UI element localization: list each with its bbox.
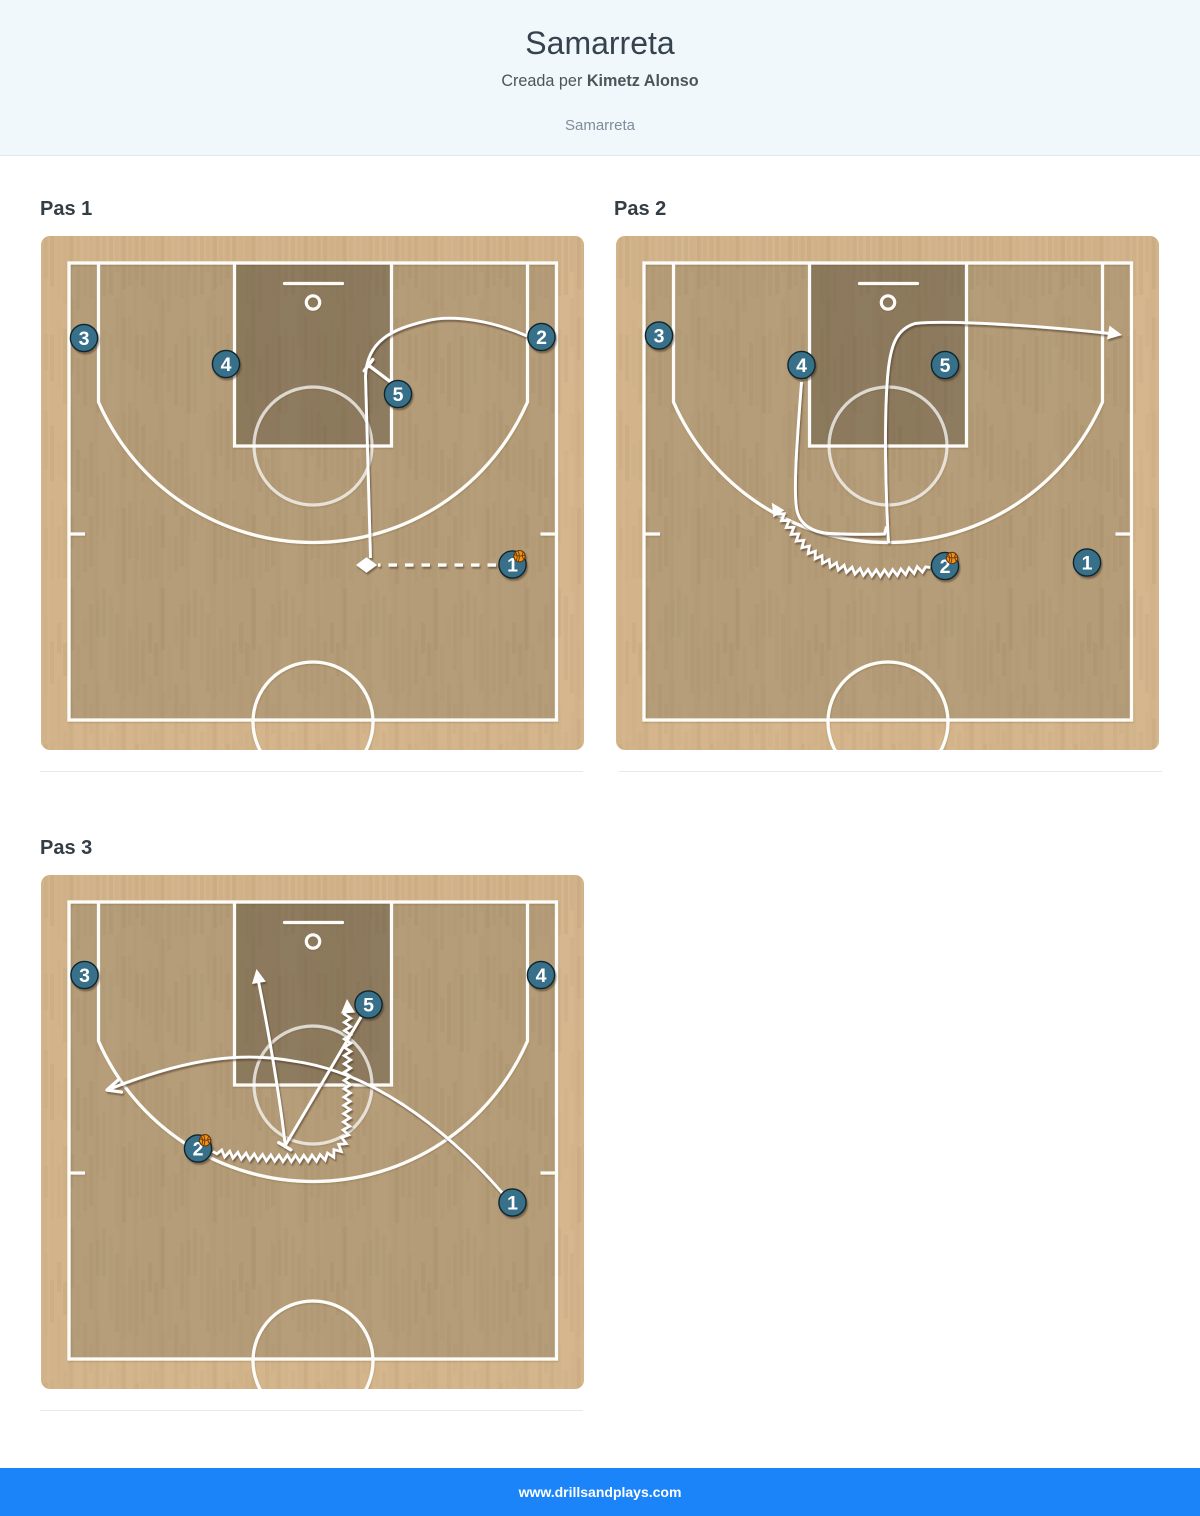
svg-text:5: 5 — [939, 355, 950, 377]
svg-text:4: 4 — [536, 965, 547, 987]
svg-text:5: 5 — [393, 384, 404, 406]
svg-text:1: 1 — [507, 1192, 518, 1214]
svg-text:4: 4 — [221, 354, 232, 376]
svg-text:3: 3 — [79, 328, 90, 350]
svg-text:3: 3 — [653, 325, 664, 347]
svg-text:1: 1 — [1081, 552, 1092, 574]
svg-text:3: 3 — [79, 965, 90, 987]
svg-text:2: 2 — [536, 327, 547, 349]
svg-text:4: 4 — [796, 355, 807, 377]
svg-text:5: 5 — [363, 994, 374, 1016]
